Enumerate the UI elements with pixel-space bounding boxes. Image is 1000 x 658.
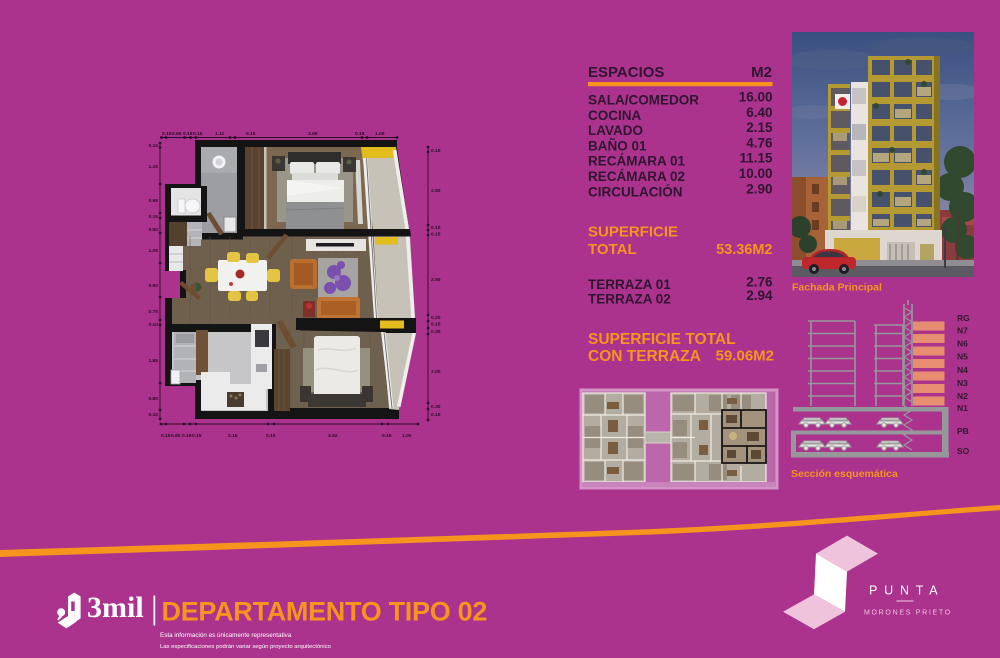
svg-text:0.15: 0.15	[246, 131, 256, 137]
svg-text:N2: N2	[957, 391, 968, 401]
svg-text:11.15: 11.15	[739, 151, 773, 166]
svg-text:1.11: 1.11	[215, 131, 225, 137]
svg-text:3.52: 3.52	[328, 433, 338, 439]
svg-text:CON TERRAZA: CON TERRAZA	[588, 348, 701, 365]
svg-text:2.94: 2.94	[746, 288, 773, 303]
svg-text:0.15: 0.15	[193, 131, 203, 137]
svg-text:RECÁMARA 02: RECÁMARA 02	[588, 169, 685, 184]
svg-text:2.15: 2.15	[228, 433, 238, 439]
svg-text:0.30: 0.30	[431, 329, 441, 335]
svg-text:2.50: 2.50	[431, 277, 441, 283]
svg-text:0.15: 0.15	[148, 412, 158, 418]
svg-text:1.15: 1.15	[148, 164, 158, 170]
svg-text:SUPERFICIE: SUPERFICIE	[588, 223, 678, 240]
svg-text:PB: PB	[957, 426, 969, 436]
svg-text:N7: N7	[957, 326, 968, 336]
svg-text:0.15: 0.15	[355, 131, 365, 137]
svg-text:0.50: 0.50	[148, 227, 158, 233]
svg-text:0.15: 0.15	[431, 148, 441, 154]
svg-text:1.00: 1.00	[375, 131, 385, 137]
svg-text:LAVADO: LAVADO	[588, 123, 643, 138]
svg-text:SALA/COMEDOR: SALA/COMEDOR	[588, 93, 699, 108]
svg-text:TERRAZA 02: TERRAZA 02	[588, 291, 671, 306]
svg-text:M2: M2	[751, 64, 772, 81]
svg-text:Las especificaciones podrán va: Las especificaciones podrán variar según…	[160, 644, 332, 650]
svg-text:0.15: 0.15	[148, 143, 158, 149]
svg-text:SUPERFICIE TOTAL: SUPERFICIE TOTAL	[588, 331, 736, 348]
svg-text:0.60: 0.60	[171, 433, 181, 439]
svg-text:0.15: 0.15	[431, 322, 441, 328]
svg-text:0.15: 0.15	[431, 412, 441, 418]
svg-text:0.19: 0.19	[182, 433, 192, 439]
svg-text:0.30: 0.30	[431, 404, 441, 410]
svg-text:0.19: 0.19	[183, 131, 193, 137]
svg-text:Esta información es únicamente: Esta información es únicamente represent…	[160, 632, 292, 639]
svg-text:6.40: 6.40	[746, 105, 772, 120]
svg-text:TERRAZA 01: TERRAZA 01	[588, 277, 671, 292]
svg-text:Fachada Principal: Fachada Principal	[792, 282, 882, 294]
svg-text:0.15: 0.15	[162, 131, 172, 137]
svg-text:4.76: 4.76	[746, 135, 773, 150]
svg-text:0.15: 0.15	[192, 433, 202, 439]
svg-text:0.15: 0.15	[161, 433, 171, 439]
svg-text:0.95: 0.95	[148, 198, 158, 204]
svg-text:ESPACIOS: ESPACIOS	[588, 64, 664, 81]
svg-text:SO: SO	[957, 446, 970, 456]
svg-text:COCINA: COCINA	[588, 108, 641, 123]
svg-text:BAÑO 01: BAÑO 01	[588, 138, 647, 153]
svg-text:16.00: 16.00	[739, 90, 773, 105]
svg-text:53.36M2: 53.36M2	[716, 242, 772, 258]
svg-text:0.15: 0.15	[148, 214, 158, 220]
svg-text:TOTAL: TOTAL	[588, 241, 637, 258]
svg-text:1.85: 1.85	[148, 358, 158, 364]
svg-text:RECÁMARA 01: RECÁMARA 01	[588, 154, 686, 169]
svg-text:N6: N6	[957, 339, 968, 349]
svg-text:0.90: 0.90	[148, 283, 158, 289]
svg-text:CIRCULACIÓN: CIRCULACIÓN	[588, 184, 683, 199]
svg-text:0.15: 0.15	[431, 232, 441, 238]
svg-text:PUNTA: PUNTA	[869, 584, 944, 598]
svg-text:DEPARTAMENTO TIPO 02: DEPARTAMENTO TIPO 02	[162, 597, 488, 627]
svg-text:N3: N3	[957, 378, 968, 388]
svg-text:0.15: 0.15	[382, 433, 392, 439]
svg-text:3mil: 3mil	[87, 591, 144, 624]
svg-text:0.20: 0.20	[431, 315, 441, 321]
svg-text:59.06M2: 59.06M2	[716, 348, 774, 365]
svg-text:1.00: 1.00	[402, 433, 412, 439]
svg-text:2.00: 2.00	[431, 369, 441, 375]
svg-text:2.15: 2.15	[746, 120, 773, 135]
svg-text:N5: N5	[957, 352, 968, 362]
svg-text:3.69: 3.69	[308, 131, 318, 137]
svg-text:0.60: 0.60	[172, 131, 182, 137]
svg-text:0.80: 0.80	[148, 396, 158, 402]
svg-text:RG: RG	[957, 313, 970, 323]
svg-text:0.15: 0.15	[266, 433, 276, 439]
svg-text:0.75: 0.75	[148, 309, 158, 315]
svg-text:10.00: 10.00	[739, 166, 773, 181]
svg-text:2.90: 2.90	[746, 181, 772, 196]
svg-text:Sección esquemática: Sección esquemática	[791, 468, 898, 480]
svg-text:MORONES PRIETO: MORONES PRIETO	[864, 610, 952, 617]
svg-text:N4: N4	[957, 365, 968, 375]
svg-text:0.10: 0.10	[431, 225, 441, 231]
svg-text:N1: N1	[957, 403, 968, 413]
svg-text:1.05: 1.05	[148, 248, 158, 254]
svg-text:2.50: 2.50	[431, 188, 441, 194]
svg-text:0.10: 0.10	[148, 322, 158, 328]
